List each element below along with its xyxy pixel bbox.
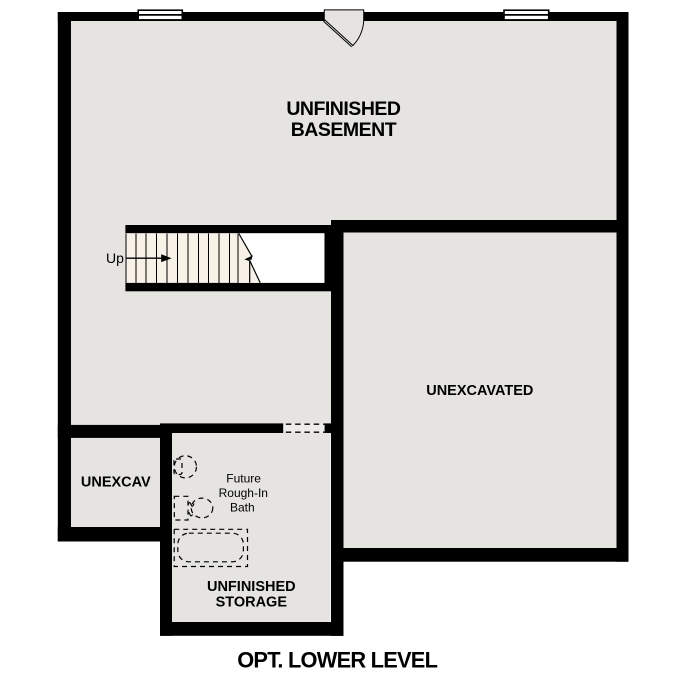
svg-text:STORAGE: STORAGE [216, 595, 288, 611]
svg-text:UNEXCAVATED: UNEXCAVATED [426, 383, 533, 399]
svg-text:Bath: Bath [230, 501, 255, 515]
svg-text:UNEXCAV: UNEXCAV [81, 474, 151, 490]
svg-text:UNFINISHED: UNFINISHED [207, 579, 296, 595]
svg-text:Rough-In: Rough-In [219, 486, 268, 500]
svg-text:BASEMENT: BASEMENT [291, 119, 397, 141]
svg-text:OPT. LOWER LEVEL: OPT. LOWER LEVEL [237, 648, 437, 673]
svg-text:UNFINISHED: UNFINISHED [286, 98, 401, 120]
svg-text:Future: Future [226, 472, 261, 486]
svg-text:Up: Up [106, 250, 124, 266]
